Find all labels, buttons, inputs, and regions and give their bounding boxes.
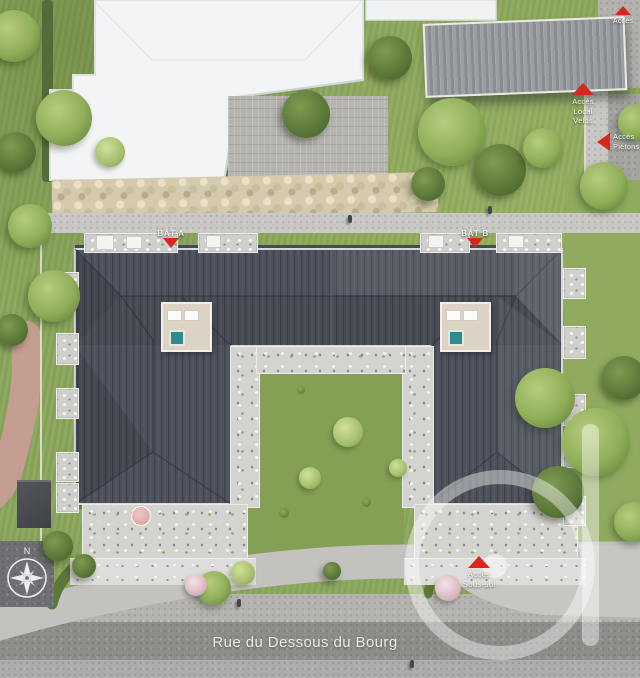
street-label: Rue du Dessous du Bourg — [160, 634, 450, 651]
site-plan-scene: N Rue du Dessous du Bourg BÂT A BÂT B Ac… — [0, 0, 640, 678]
building-label-bat-a: BÂT A — [149, 229, 193, 248]
marker-acces-local-velos: Accès Local Vélos — [562, 83, 604, 126]
access-arrow-icon — [572, 83, 594, 95]
marker-acces-sous-sol: Accès Sous-sol — [447, 556, 511, 589]
building-label-bat-b: BÂT B — [453, 229, 497, 248]
entrance-arrow-icon — [163, 238, 179, 248]
marker-acces-pietons: Accès Piétons — [597, 132, 639, 151]
access-arrow-icon — [615, 6, 631, 15]
entrance-arrow-icon — [467, 238, 483, 248]
marker-acces-top-right: Accès — [606, 6, 640, 27]
watermark-logo — [0, 0, 640, 678]
access-arrow-icon — [597, 133, 610, 151]
access-arrow-icon — [468, 556, 490, 568]
